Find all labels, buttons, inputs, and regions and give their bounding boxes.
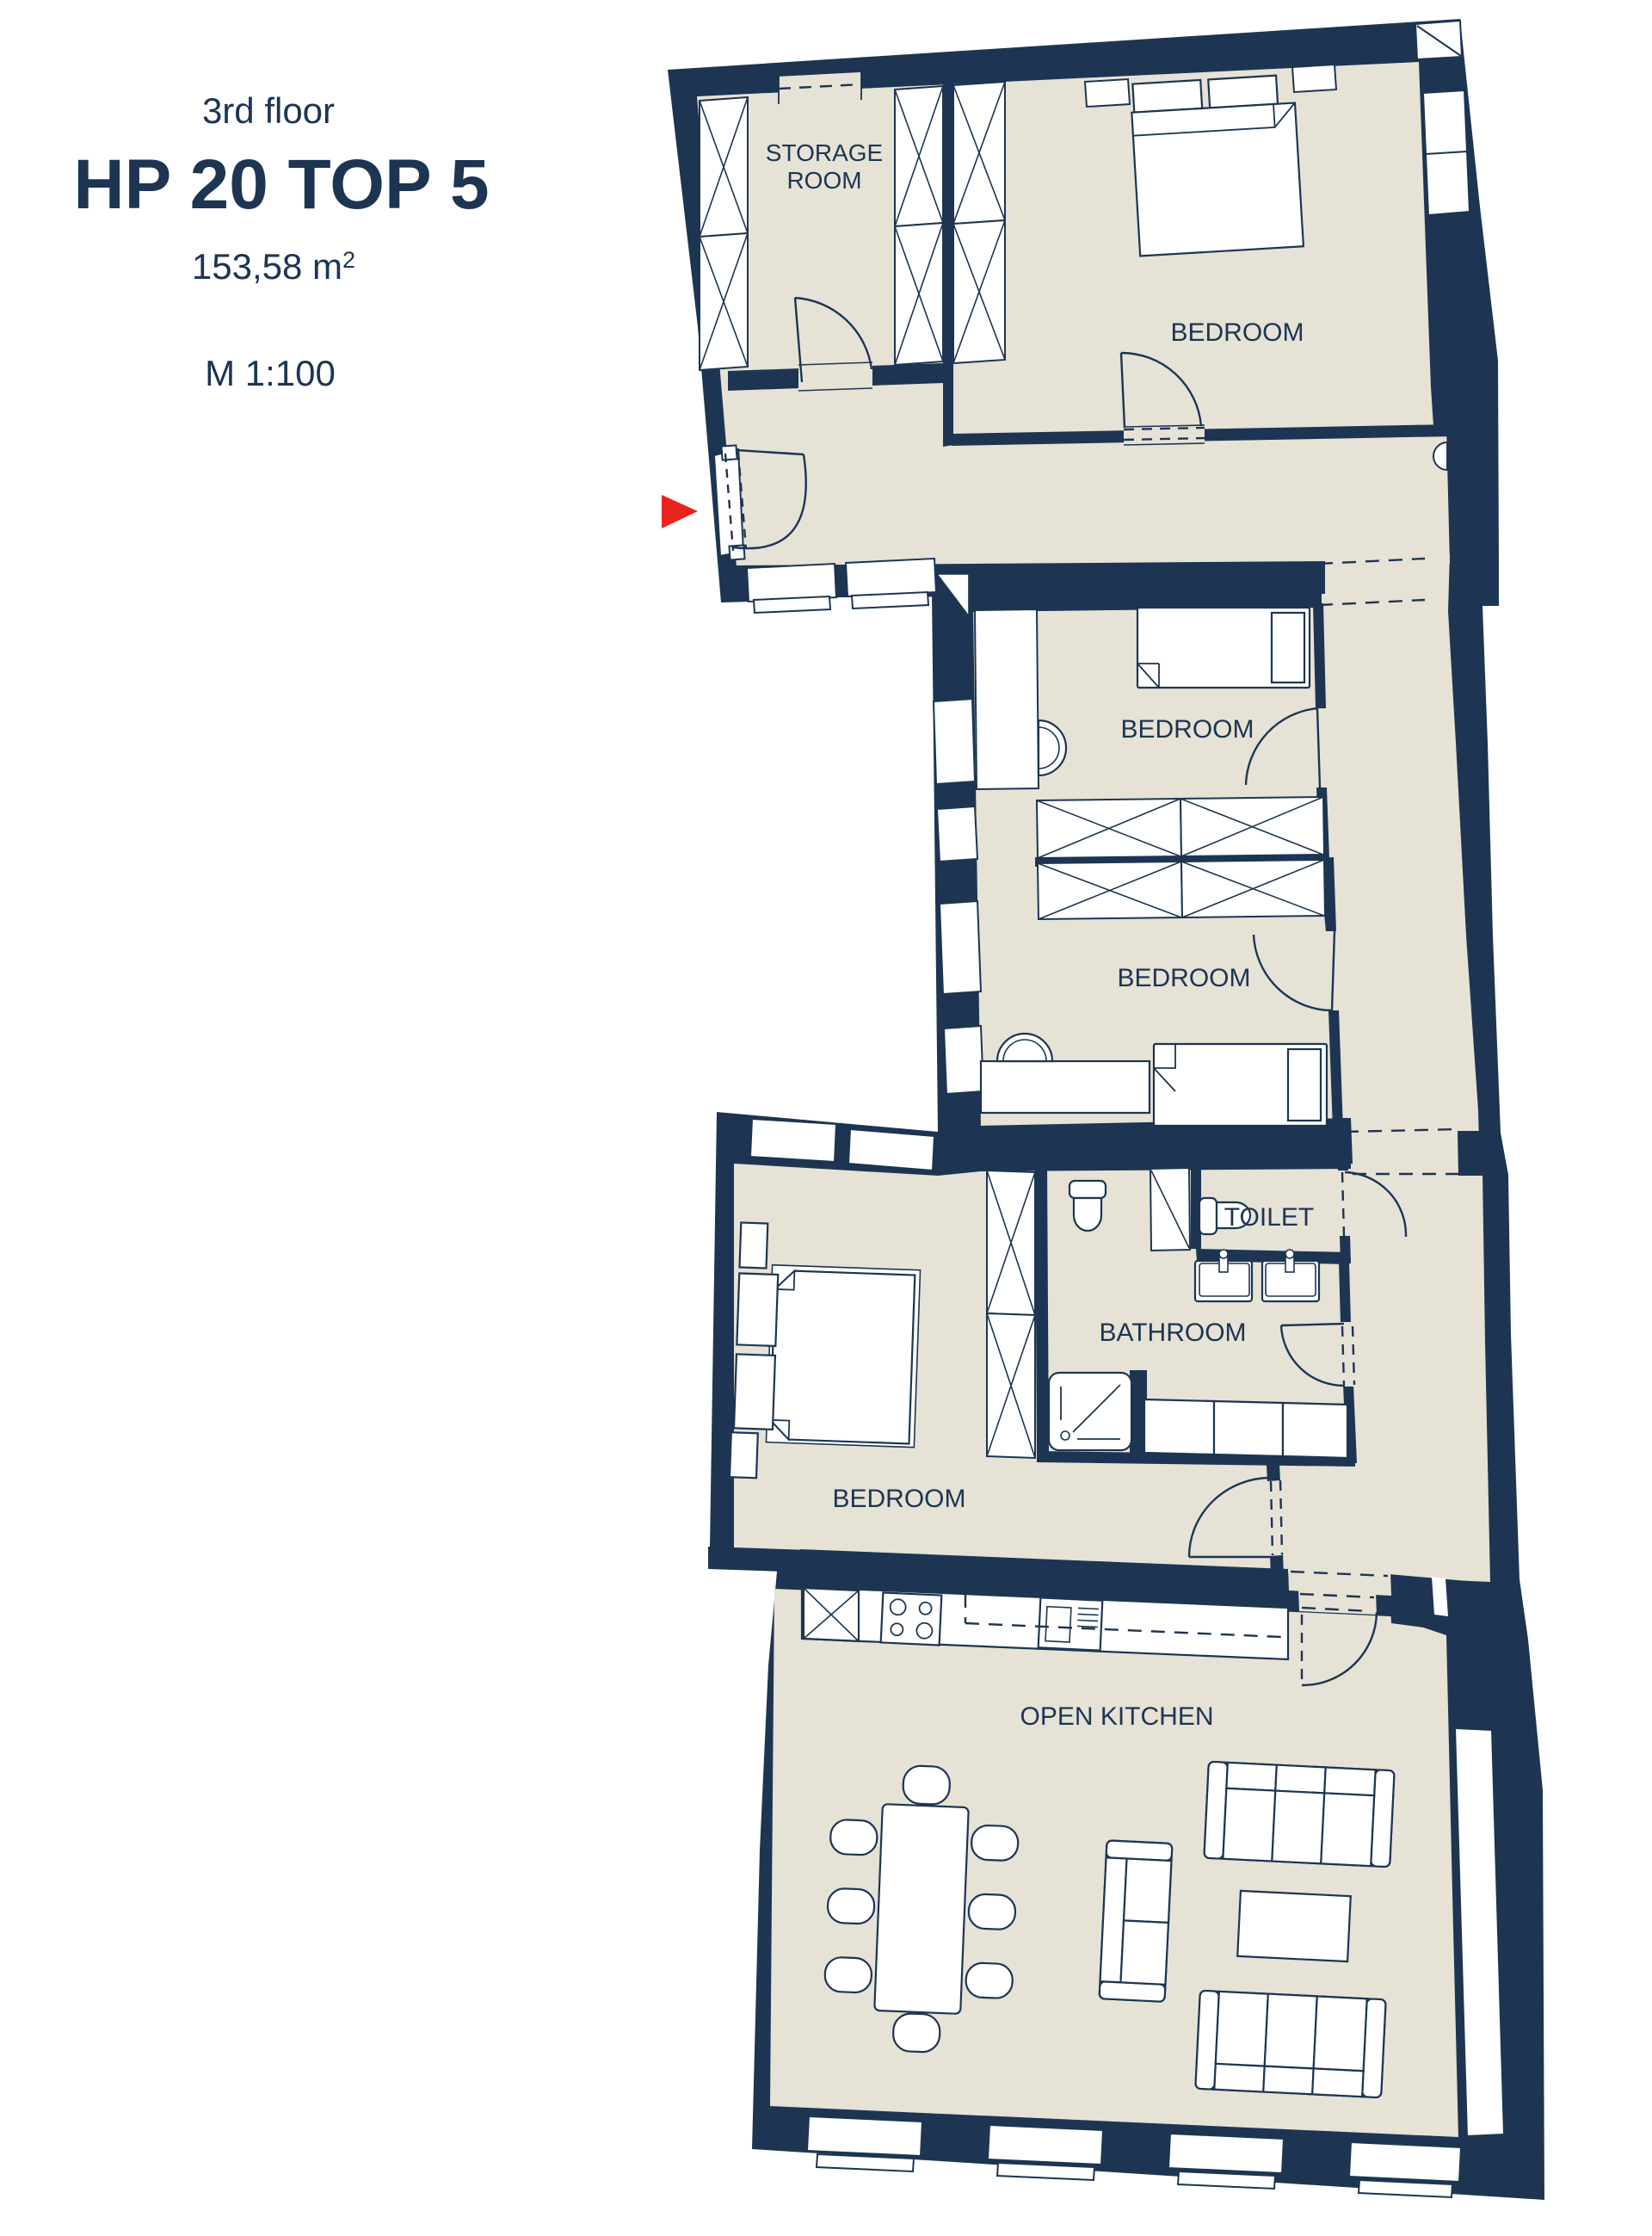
svg-text:HP 20 TOP 5: HP 20 TOP 5 (73, 145, 489, 224)
svg-text:TOILET: TOILET (1224, 1203, 1314, 1232)
svg-text:BEDROOM: BEDROOM (832, 1485, 965, 1513)
svg-text:OPEN KITCHEN: OPEN KITCHEN (1020, 1702, 1213, 1731)
svg-text:BEDROOM: BEDROOM (1170, 318, 1304, 347)
svg-text:BEDROOM: BEDROOM (1117, 964, 1250, 992)
svg-text:M 1:100: M 1:100 (205, 353, 336, 393)
svg-text:3rd floor: 3rd floor (202, 90, 335, 131)
svg-text:153,58 m2: 153,58 m2 (192, 246, 355, 287)
svg-text:BATHROOM: BATHROOM (1099, 1319, 1246, 1347)
svg-text:ROOM: ROOM (786, 167, 861, 194)
svg-text:BEDROOM: BEDROOM (1120, 715, 1254, 744)
svg-text:STORAGE: STORAGE (766, 139, 883, 166)
